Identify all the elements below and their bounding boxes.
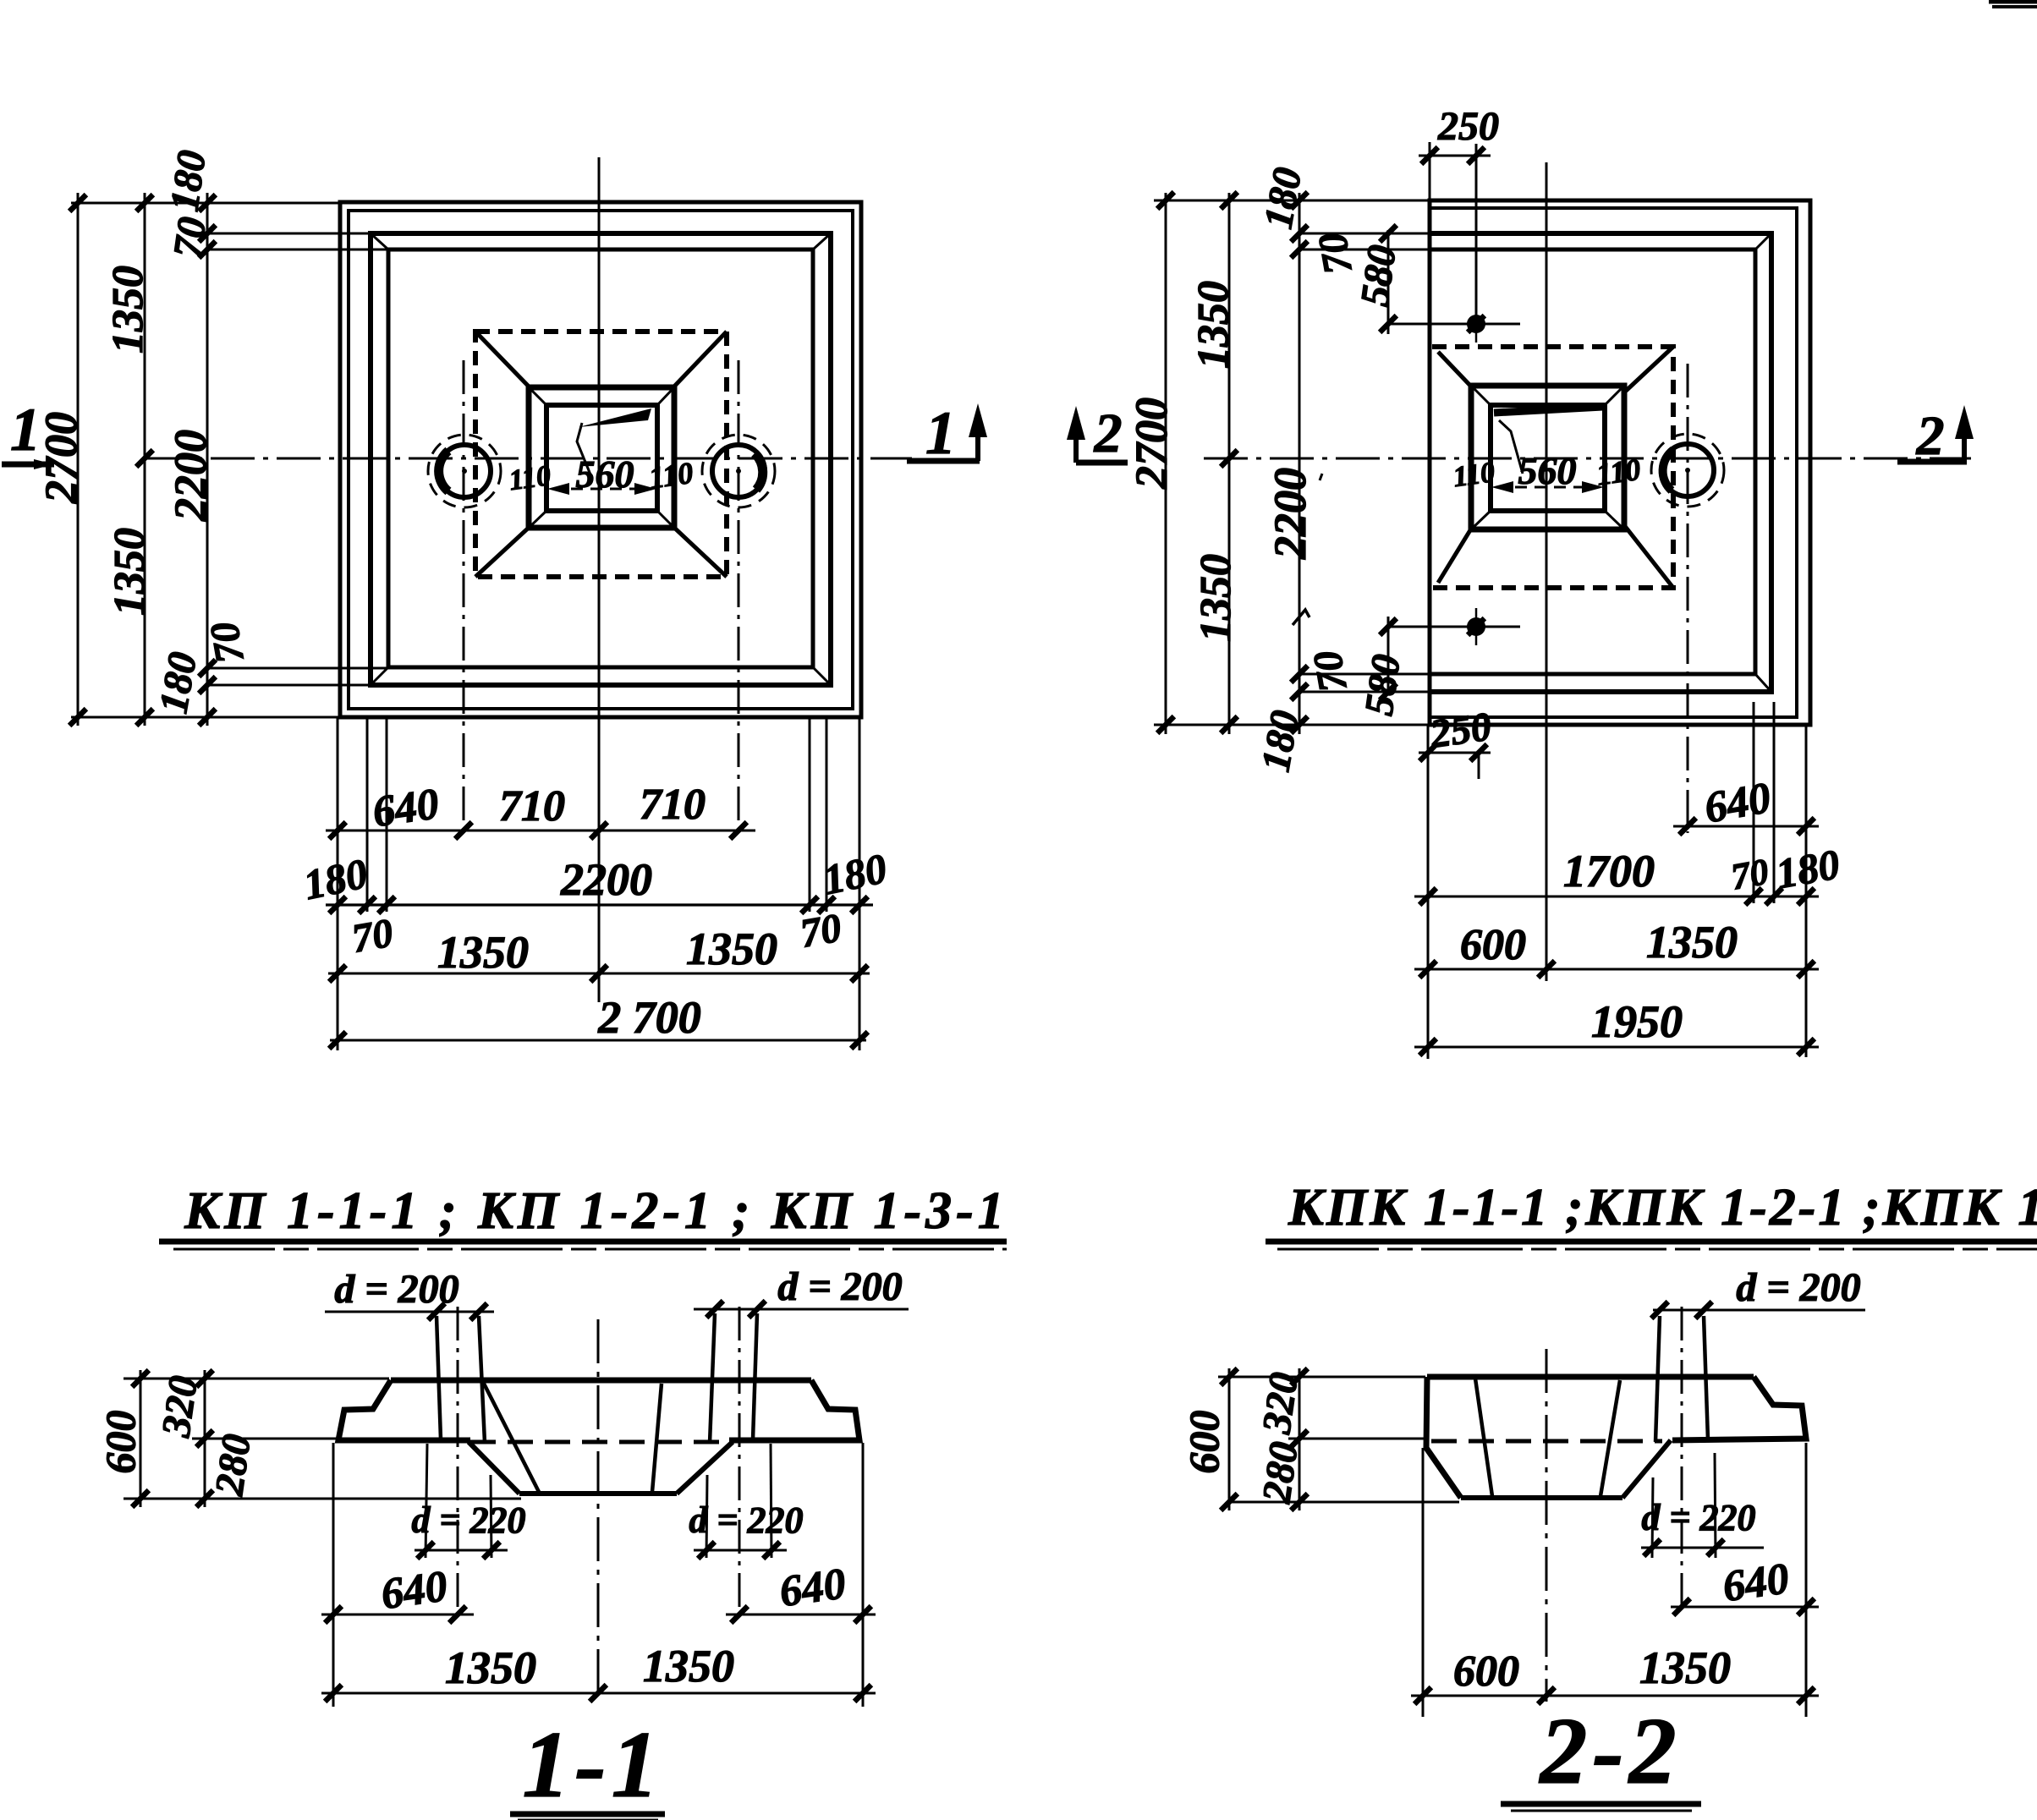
svg-text:1350: 1350 — [1639, 1642, 1731, 1693]
svg-text:70: 70 — [1309, 229, 1361, 277]
svg-text:70: 70 — [165, 214, 215, 260]
svg-text:250: 250 — [1437, 104, 1499, 149]
svg-text:180: 180 — [162, 148, 215, 215]
svg-text:640: 640 — [378, 1562, 450, 1619]
svg-text:640: 640 — [777, 1560, 848, 1616]
svg-text:70: 70 — [201, 618, 253, 666]
svg-text:1-1: 1-1 — [522, 1713, 663, 1817]
svg-text:1350: 1350 — [1646, 917, 1738, 968]
svg-text:КП 1-1-1 ; КП 1-2-1 ; КП 1-3-1: КП 1-1-1 ; КП 1-2-1 ; КП 1-3-1 — [184, 1182, 1008, 1240]
svg-text:640: 640 — [370, 780, 442, 836]
svg-text:2700: 2700 — [36, 412, 86, 504]
svg-text:1350: 1350 — [1189, 281, 1238, 369]
svg-text:600: 600 — [1460, 921, 1526, 969]
svg-text:600: 600 — [1180, 1411, 1227, 1474]
svg-text:1700: 1700 — [1563, 846, 1655, 896]
svg-text:1: 1 — [925, 399, 956, 467]
svg-text:d = 220: d = 220 — [689, 1499, 803, 1541]
svg-text:2700: 2700 — [1126, 397, 1177, 490]
svg-text:2200: 2200 — [1265, 468, 1315, 560]
svg-text:КПК 1-1-1 ;КПК 1-2-1 ;КПК 1-3-: КПК 1-1-1 ;КПК 1-2-1 ;КПК 1-3-1 — [1288, 1179, 2037, 1236]
svg-text:250: 250 — [1427, 704, 1495, 757]
svg-text:1350: 1350 — [104, 266, 152, 354]
svg-text:1350: 1350 — [106, 528, 154, 616]
svg-text:d = 200: d = 200 — [334, 1267, 458, 1312]
svg-text:1350: 1350 — [1192, 554, 1240, 642]
svg-text:600: 600 — [1453, 1647, 1519, 1696]
svg-text:70: 70 — [1304, 647, 1356, 694]
svg-text:110: 110 — [1452, 457, 1497, 493]
svg-text:280: 280 — [1254, 1439, 1307, 1507]
svg-text:1350: 1350 — [445, 1642, 536, 1693]
svg-text:1950: 1950 — [1591, 996, 1683, 1047]
svg-text:2: 2 — [1916, 405, 1945, 467]
svg-text:320: 320 — [153, 1373, 206, 1441]
svg-text:d = 220: d = 220 — [1641, 1497, 1755, 1538]
svg-text:70: 70 — [349, 910, 396, 962]
svg-text:2200: 2200 — [165, 430, 216, 522]
svg-text:320: 320 — [1254, 1370, 1307, 1438]
svg-text:d = 200: d = 200 — [777, 1264, 902, 1309]
svg-text:110: 110 — [508, 460, 553, 496]
svg-text:d = 200: d = 200 — [1736, 1265, 1860, 1310]
svg-text:600: 600 — [96, 1411, 144, 1474]
svg-text:2: 2 — [1094, 403, 1123, 464]
svg-text:2 700: 2 700 — [597, 992, 701, 1043]
svg-text:640: 640 — [1720, 1554, 1792, 1611]
svg-text:2200: 2200 — [560, 854, 652, 905]
svg-text:1350: 1350 — [437, 927, 529, 978]
svg-text:580: 580 — [1356, 652, 1409, 719]
svg-text:70: 70 — [797, 905, 844, 957]
svg-text:2-2: 2-2 — [1538, 1699, 1681, 1804]
svg-text:280: 280 — [206, 1432, 260, 1499]
svg-text:70: 70 — [1728, 851, 1772, 898]
svg-text:710: 710 — [499, 782, 565, 831]
svg-text:d = 220: d = 220 — [411, 1499, 525, 1541]
svg-text:110: 110 — [647, 456, 695, 496]
svg-text:580: 580 — [1352, 243, 1405, 310]
svg-text:1350: 1350 — [686, 924, 777, 974]
svg-text:1350: 1350 — [643, 1641, 734, 1691]
svg-text:710: 710 — [640, 781, 706, 829]
